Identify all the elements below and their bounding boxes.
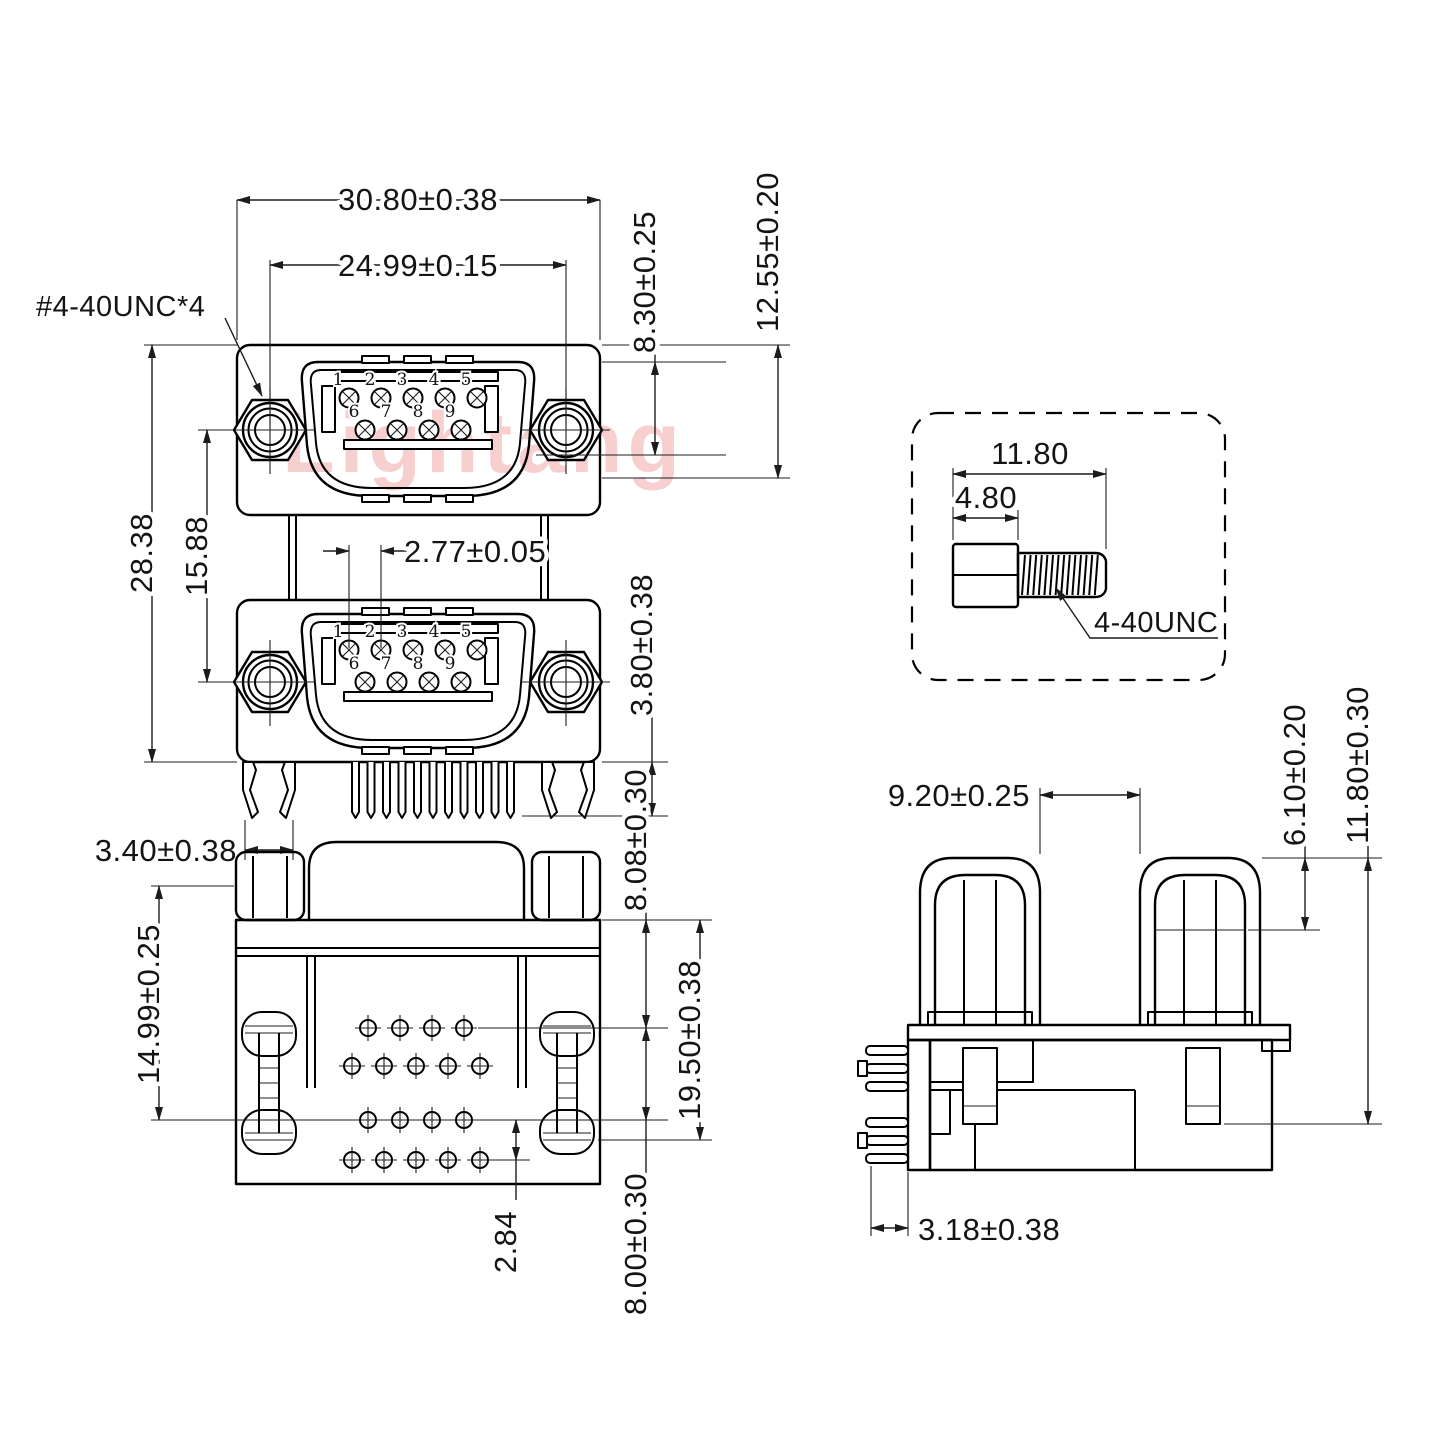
pin-number: 1	[333, 370, 344, 390]
pin-number: 7	[381, 402, 392, 422]
thread-line	[1039, 555, 1042, 595]
pin-number: 8	[413, 654, 424, 674]
pcb-pin	[352, 762, 359, 818]
pin-number: 6	[349, 654, 360, 674]
screw-shanks	[963, 1048, 1220, 1124]
pcb-pin	[399, 762, 406, 818]
pin-number: 3	[397, 370, 408, 390]
boardlock-bracket-left	[242, 1012, 296, 1154]
dim-nut-height: 6.10±0.20	[1277, 704, 1312, 846]
dim-boardlock-width: 3.40±0.38	[95, 833, 237, 868]
dim-pin-offset: 3.18±0.38	[918, 1212, 1060, 1247]
pin-number: 3	[397, 622, 408, 642]
plate-step	[1262, 1040, 1290, 1051]
pin-number: 8	[413, 402, 424, 422]
dim-screw-length: 11.80±0.30	[1340, 686, 1375, 844]
pin-number: 2	[365, 622, 376, 642]
pin-number: 7	[381, 654, 392, 674]
mounting-plate	[908, 1025, 1290, 1040]
pcb-pin	[445, 762, 452, 818]
dim-thread-callout: #4-40UNC*4	[36, 291, 205, 323]
dim-housing-height: 12.55±0.20	[750, 172, 785, 332]
dim-pin-pitch: 2.77±0.05	[404, 534, 546, 569]
dim-first-row-offset: 8.08±0.30	[618, 769, 653, 911]
pin-hole-pattern	[339, 1015, 493, 1173]
shell-latch-left	[322, 386, 335, 432]
boardlock-bracket-right	[540, 1012, 594, 1154]
dim-nut-gap: 9.20±0.25	[888, 778, 1030, 813]
bottom-body	[236, 920, 600, 1184]
side-view: 9.20±0.25 6.10±0.20 11.80±0.30 3.18±0.38	[858, 686, 1382, 1247]
bottom-hex-nuts	[236, 852, 600, 920]
thread-line	[1044, 555, 1047, 595]
dim-port-spacing: 15.88	[179, 516, 214, 596]
bracket-strap	[920, 858, 1040, 1025]
pcb-pin	[492, 762, 499, 818]
hex-nut-side	[935, 875, 1025, 1025]
side-pcb-pins	[858, 1046, 908, 1163]
pcb-pins	[352, 762, 514, 818]
pin-number: 9	[445, 402, 456, 422]
thread-line	[1022, 555, 1025, 595]
pin-number: 9	[445, 654, 456, 674]
pin-number: 5	[461, 622, 472, 642]
pcb-pin	[507, 762, 514, 818]
thread-line	[1067, 555, 1070, 595]
thread-line	[1095, 555, 1098, 595]
dim-housing-width: 30.80±0.38	[338, 182, 498, 217]
dim-last-row-offset: 19.50±0.38	[672, 960, 707, 1120]
pin-number: 1	[333, 622, 344, 642]
thread-line	[1089, 555, 1092, 595]
pcb-pin	[461, 762, 468, 818]
side-body-internal	[930, 1040, 1135, 1170]
pin-number: 2	[365, 370, 376, 390]
dim-screw-spacing: 24.99±0.15	[338, 248, 498, 283]
screw-detail-view: 11.80 4.80 4-40UNC	[912, 413, 1225, 680]
thread-hatching	[1022, 555, 1098, 595]
thread-line	[1028, 555, 1031, 595]
thread-line	[1033, 555, 1036, 595]
pcb-pin	[476, 762, 483, 818]
dim-pin-length: 3.80±0.38	[624, 574, 659, 716]
nut-assembly-left	[920, 858, 1040, 1025]
pcb-pin	[414, 762, 421, 818]
dim-row-pitch: 2.84	[488, 1211, 523, 1273]
nut-assembly-right	[1140, 858, 1260, 1025]
dim-group-pitch: 8.00±0.30	[618, 1173, 653, 1315]
thread-line	[1061, 555, 1064, 595]
front-flange	[908, 1040, 930, 1170]
connector-engineering-drawing: Lightang	[0, 0, 1440, 1440]
hex-nut-side	[1155, 875, 1245, 1025]
pcb-pin	[383, 762, 390, 818]
pcb-pin	[368, 762, 375, 818]
dim-shell-height: 8.30±0.25	[627, 211, 662, 353]
pin-number: 4	[429, 622, 440, 642]
front-view: 1 2 3 4 5 6 7 8 9 1 2 3 4 5 6 7 8 9	[36, 172, 790, 868]
pin-number: 4	[429, 370, 440, 390]
dim-screw-head-length: 4.80	[955, 480, 1017, 515]
dim-total-height: 28.38	[124, 513, 159, 593]
drawing-canvas: Lightang	[0, 0, 1440, 1440]
bracket-strap	[1140, 858, 1260, 1025]
shell-dome	[309, 842, 524, 920]
shell-latch-right	[485, 386, 498, 432]
pcb-pin	[430, 762, 437, 818]
dim-screw-total-length: 11.80	[991, 436, 1069, 471]
dim-boardlock-offset: 14.99±0.25	[131, 924, 166, 1084]
dim-screw-thread-callout: 4-40UNC	[1094, 607, 1218, 639]
thread-line	[1084, 555, 1087, 595]
pin-number: 5	[461, 370, 472, 390]
thread-line	[1078, 555, 1081, 595]
pin-number: 6	[349, 402, 360, 422]
thread-line	[1072, 555, 1075, 595]
thread-line	[1050, 555, 1053, 595]
